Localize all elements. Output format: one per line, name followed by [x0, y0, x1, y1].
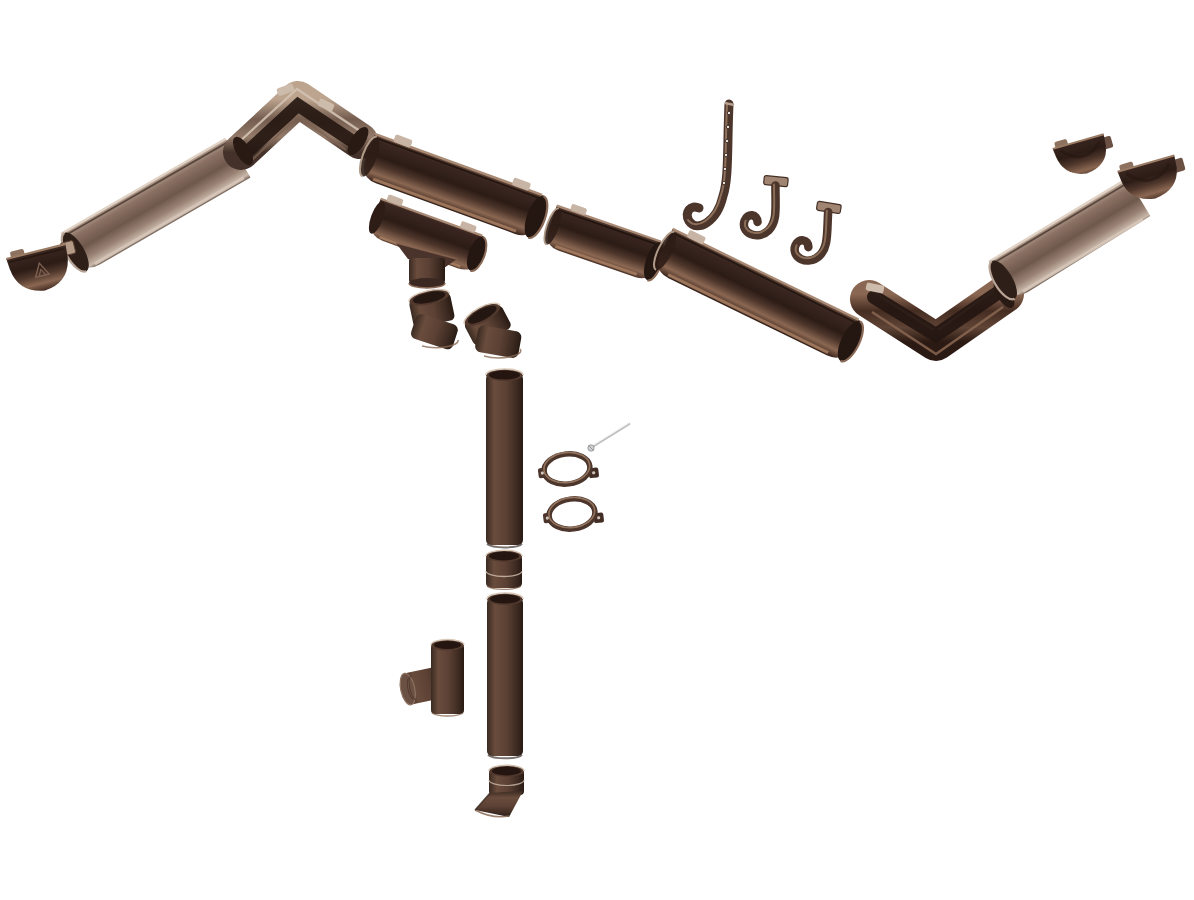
endcap-right-1 [1051, 127, 1118, 181]
gutter-section-middle-2 [540, 198, 670, 284]
pipe-coupler [486, 550, 522, 589]
downpipe-section-2 [487, 593, 523, 758]
downpipe-elbow-a [408, 286, 460, 350]
downpipe-section-1 [486, 369, 523, 547]
mounting-screw [588, 423, 629, 451]
fascia-bracket-2 [793, 199, 841, 265]
downpipe-elbow-b [461, 299, 522, 359]
pipe-clamp-1 [536, 449, 599, 488]
gutter-corner-left [229, 83, 372, 168]
strap-hanger [687, 103, 734, 226]
outlet-shoe [475, 765, 524, 817]
downpipe-tee [398, 640, 464, 716]
gutter-section-left [56, 138, 250, 277]
gutter-system-product-image [0, 0, 1194, 900]
fascia-bracket-1 [743, 174, 788, 238]
endcap-left [5, 236, 83, 297]
pipe-clamp-2 [541, 494, 604, 533]
gutter-section-middle-3 [649, 221, 872, 366]
gutter-corner-right [865, 277, 1018, 354]
gutter-section-right [984, 178, 1152, 304]
